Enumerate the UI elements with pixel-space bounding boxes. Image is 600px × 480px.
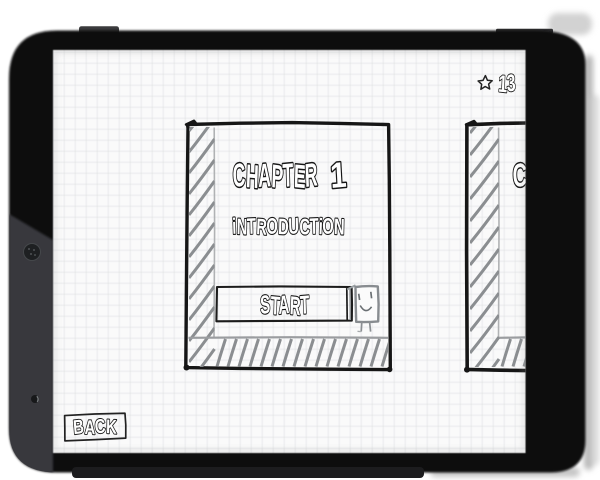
svg-text:1: 1 — [329, 154, 348, 196]
svg-text:START: START — [259, 289, 310, 320]
svg-text:iNTRODUCTiON: iNTRODUCTiON — [231, 213, 345, 239]
